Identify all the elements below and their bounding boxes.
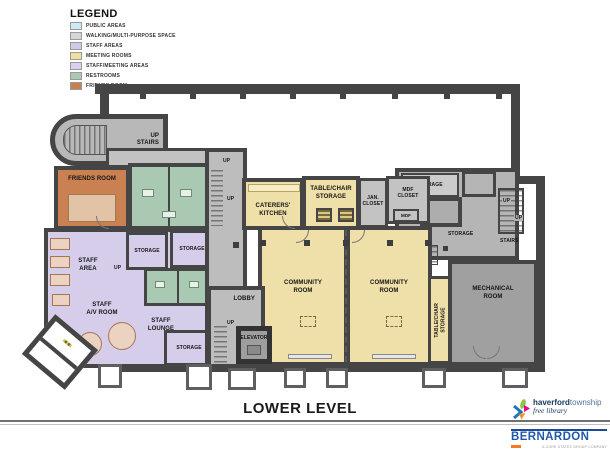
staff-desk [52,294,70,306]
hatch-mark [63,339,73,348]
community-room-2: COMMUNITY ROOM [346,226,432,366]
mdf-sub-room: MDF [393,209,419,222]
haverford-tagline: free library [533,407,601,415]
community-room-label: COMMUNITY ROOM [370,280,408,295]
column [304,240,310,246]
column [425,240,431,246]
legend-item: STAFF AREAS [70,42,176,50]
bernardon-tagline: A CORE STATES GROUP COMPANY [542,445,607,449]
legend: LEGEND PUBLIC AREASWALKING/MULTI-PURPOSE… [70,8,176,90]
window-well [326,368,348,388]
bernardon-name: BERNARDON [511,432,607,444]
toilet-fixture [189,281,199,288]
column [387,240,393,246]
legend-item: PUBLIC AREAS [70,22,176,30]
restrooms-north [128,163,210,230]
right-upper-wall [511,84,520,180]
storage-label-mid-right: STORAGE [448,231,473,237]
column [260,240,266,246]
wall-tick [290,94,296,99]
kitchen-counter [248,184,300,192]
legend-label: STAFF AREAS [86,43,123,49]
mechanical-room-label: MECHANICAL ROOM [472,286,513,301]
mdf-closet: MDF CLOSET MDF [386,176,430,224]
folding-partition [345,230,347,362]
wall-tick [496,94,502,99]
haverford-logo-icon [511,399,531,425]
elevator-cab [247,345,261,355]
friends-room: FRIENDS ROOM [54,166,130,230]
projection-screen [288,354,332,359]
column [443,246,448,251]
mdf-closet-label: MDF CLOSET [398,187,419,200]
window-well [186,364,212,390]
bernardon-logo: BERNARDON A CORE STATES GROUP COMPANY [511,429,607,449]
friends-room-label: FRIENDS ROOM [68,176,116,184]
legend-label: PUBLIC AREAS [86,23,126,29]
up-label-corridor-top: UP [223,158,230,164]
restroom-divider [177,271,179,303]
lounge-table [108,322,136,350]
wall-tick [140,94,146,99]
wall-tick [392,94,398,99]
bernardon-orange-mark [511,445,521,448]
floor-box [386,316,402,327]
legend-item: WALKING/MULTI-PURPOSE SPACE [70,32,176,40]
top-wall [95,84,519,94]
staff-desk [50,256,70,268]
lobby-label: LOBBY [234,296,256,304]
service-closet-a [462,171,496,197]
lobby-stairs-treads [214,326,227,366]
haverford-name-regular: township [570,398,602,407]
storage-label: STORAGE [176,345,201,351]
window-well [284,368,306,388]
staff-av-room-label: STAFF A/V ROOM [72,302,132,317]
legend-swatch [70,52,82,60]
community-room-label: COMMUNITY ROOM [284,280,322,295]
toilet-fixture [155,281,165,288]
legend-swatch [70,62,82,70]
storage-label: STORAGE [179,246,204,252]
wall-tick [240,94,246,99]
tower-stairs-treads [63,125,107,155]
legend-swatch [70,32,82,40]
restrooms-staff [144,268,214,306]
jan-closet-label: JAN. CLOSET [363,195,384,208]
legend-item: RESTROOMS [70,72,176,80]
legend-item: MEETING ROOMS [70,52,176,60]
haverford-logo-text: haverfordtownship free library [533,399,601,415]
toilet-fixture [142,189,154,197]
elevator: ELEVATOR [236,326,272,364]
stairs-label-right: STAIRS [500,238,519,244]
legend-label: WALKING/MULTI-PURPOSE SPACE [86,33,176,39]
chair-stack [338,208,354,222]
up-label-corridor: UP [227,196,234,202]
staff-desk [50,238,70,250]
haverford-library-logo: haverfordtownship free library [511,399,601,425]
sink-fixture [162,211,176,218]
floor-plan-page: LEGEND PUBLIC AREASWALKING/MULTI-PURPOSE… [0,0,610,457]
chair-stack [316,208,332,222]
up-stairs-label: UPSTAIRS [137,133,159,148]
legend-label: RESTROOMS [86,73,120,79]
window-well [228,368,256,390]
legend-swatch [70,22,82,30]
projection-screen [372,354,416,359]
wall-tick [190,94,196,99]
wall-tick [444,94,450,99]
corridor-stairs-treads [211,170,223,226]
table-chair-storage-room: TABLE/CHAIR STORAGE [302,176,360,230]
mdf-label: MDF [401,213,411,219]
elevator-label: ELEVATOR [240,335,267,341]
window-well [422,368,446,388]
window-well [98,364,122,388]
legend-label: STAFF/MEETING AREAS [86,63,148,69]
legend-title: LEGEND [70,8,176,20]
wall-tick [340,94,346,99]
column [343,240,349,246]
column [233,242,239,248]
legend-label: MEETING ROOMS [86,53,132,59]
up-label-lobby: UP [227,320,234,326]
window-well [502,368,528,388]
storage-label: STORAGE [134,248,159,254]
plan-title: LOWER LEVEL [170,400,430,417]
legend-items: PUBLIC AREASWALKING/MULTI-PURPOSE SPACES… [70,22,176,90]
legend-swatch [70,72,82,80]
storage-room-a: STORAGE [126,232,168,270]
legend-swatch [70,42,82,50]
diagonal-room-divider [40,337,78,370]
right-stairs-treads [498,188,524,234]
up-label-right-stairs-2: UP [514,215,523,221]
up-label-right-stairs-1: UP [502,198,511,204]
legend-item: STAFF/MEETING AREAS [70,62,176,70]
table-chair-storage-vertical-label: TABLE/CHAIR STORAGE [434,303,447,338]
staff-desk [50,274,70,286]
jan-closet: JAN. CLOSET [358,178,388,228]
floor-box [300,316,316,327]
toilet-fixture [180,189,192,197]
legend-swatch [70,82,82,90]
table-chair-storage-label: TABLE/CHAIR STORAGE [310,186,351,201]
